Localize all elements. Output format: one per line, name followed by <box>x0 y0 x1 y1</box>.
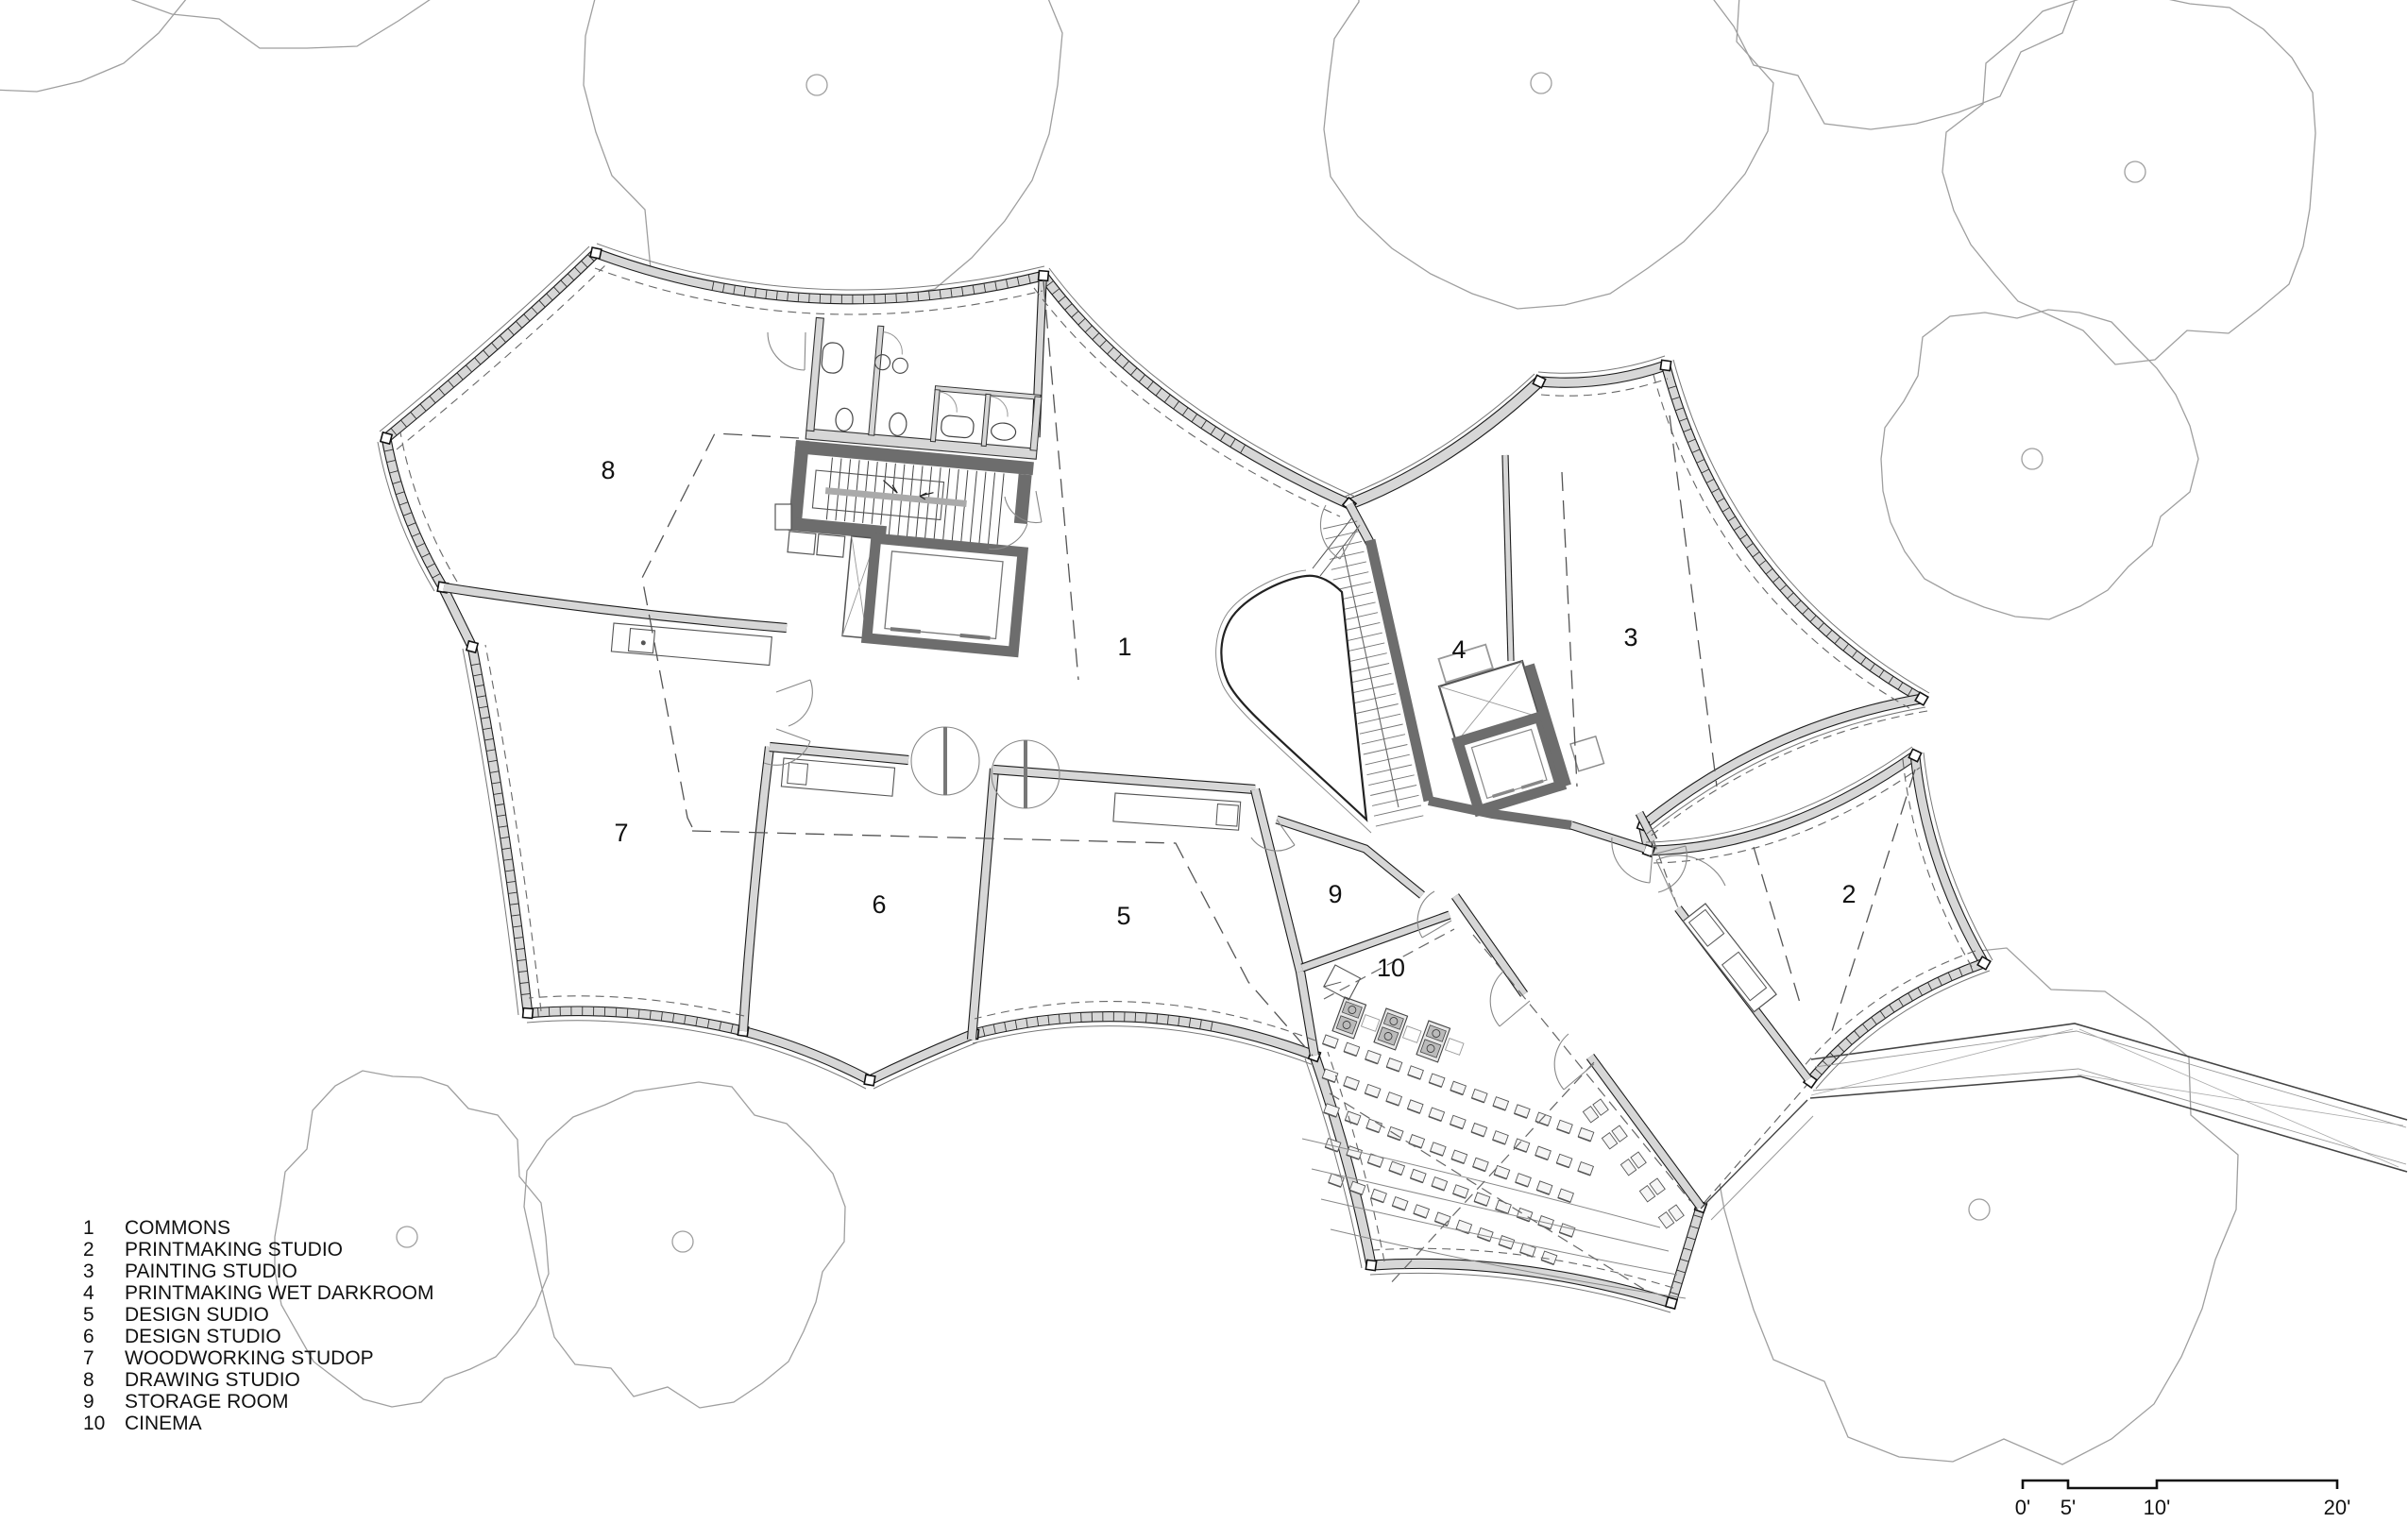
svg-text:5': 5' <box>2060 1496 2076 1519</box>
svg-text:7: 7 <box>614 819 628 847</box>
svg-text:3: 3 <box>1623 623 1637 652</box>
svg-text:2: 2 <box>83 1239 94 1261</box>
svg-text:8: 8 <box>83 1369 94 1391</box>
svg-text:9: 9 <box>1328 880 1342 908</box>
svg-text:1: 1 <box>1117 633 1131 661</box>
svg-text:9: 9 <box>83 1391 94 1413</box>
svg-text:DRAWING STUDIO: DRAWING STUDIO <box>125 1369 300 1391</box>
svg-text:2: 2 <box>1841 880 1856 908</box>
svg-text:DESIGN STUDIO: DESIGN STUDIO <box>125 1326 281 1347</box>
svg-text:1: 1 <box>83 1217 94 1239</box>
svg-text:PRINTMAKING WET DARKROOM: PRINTMAKING WET DARKROOM <box>125 1282 433 1304</box>
svg-text:0': 0' <box>2015 1496 2030 1519</box>
svg-text:DESIGN SUDIO: DESIGN SUDIO <box>125 1304 269 1326</box>
svg-text:8: 8 <box>601 456 615 484</box>
svg-text:4: 4 <box>1451 635 1466 664</box>
svg-text:STORAGE ROOM: STORAGE ROOM <box>125 1391 288 1413</box>
svg-text:5: 5 <box>83 1304 94 1326</box>
svg-text:7: 7 <box>83 1347 94 1369</box>
svg-text:CINEMA: CINEMA <box>125 1413 202 1434</box>
svg-text:20': 20' <box>2324 1496 2351 1519</box>
svg-text:10: 10 <box>1377 954 1405 982</box>
svg-text:PRINTMAKING STUDIO: PRINTMAKING STUDIO <box>125 1239 343 1261</box>
svg-text:6: 6 <box>872 890 886 919</box>
svg-text:WOODWORKING STUDOP: WOODWORKING STUDOP <box>125 1347 374 1369</box>
svg-text:COMMONS: COMMONS <box>125 1217 230 1239</box>
svg-text:10': 10' <box>2144 1496 2171 1519</box>
svg-text:5: 5 <box>1116 902 1130 930</box>
svg-text:10: 10 <box>83 1413 105 1434</box>
svg-text:4: 4 <box>83 1282 94 1304</box>
svg-text:3: 3 <box>83 1261 94 1282</box>
svg-text:PAINTING STUDIO: PAINTING STUDIO <box>125 1261 297 1282</box>
svg-text:6: 6 <box>83 1326 94 1347</box>
